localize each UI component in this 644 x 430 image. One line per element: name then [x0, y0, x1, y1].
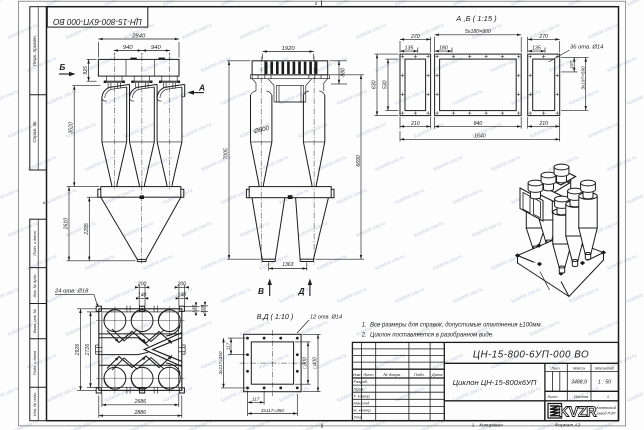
svg-text:№ докум.: № докум. — [383, 372, 401, 377]
svg-text:135: 135 — [405, 45, 414, 51]
svg-text:3x117=350: 3x117=350 — [218, 351, 223, 374]
svg-text:Лист: Лист — [546, 394, 558, 399]
svg-text:Изм: Изм — [353, 372, 361, 377]
svg-text:270: 270 — [538, 34, 548, 40]
svg-text:200: 200 — [177, 282, 187, 288]
svg-text:Циклон ЦН-15-800х6УП: Циклон ЦН-15-800х6УП — [453, 378, 537, 387]
svg-text:ЦН-15-800-6УП-000 ВО: ЦН-15-800-6УП-000 ВО — [473, 350, 589, 361]
svg-text:12 отв. Ø14: 12 отв. Ø14 — [310, 315, 342, 321]
svg-text:117: 117 — [252, 397, 260, 402]
svg-text:2886: 2886 — [134, 410, 147, 416]
svg-text:270: 270 — [410, 34, 420, 40]
svg-text:630: 630 — [372, 80, 378, 89]
svg-text:Пров.: Пров. — [354, 386, 365, 391]
svg-text:В,Д ( 1:10 ): В,Д ( 1:10 ) — [257, 312, 294, 321]
svg-text:5x180=900: 5x180=900 — [465, 29, 491, 35]
svg-text:197: 197 — [569, 60, 574, 68]
svg-text:KVZR: KVZR — [559, 404, 598, 420]
svg-text:□300: □300 — [303, 357, 309, 369]
svg-text:6690: 6690 — [356, 155, 362, 167]
svg-text:210: 210 — [538, 121, 548, 127]
svg-text:Подп.: Подп. — [414, 372, 425, 377]
svg-text:825: 825 — [83, 66, 89, 75]
svg-text:3488,9: 3488,9 — [571, 380, 587, 386]
svg-text:Инв. № дубл.: Инв. № дубл. — [32, 274, 37, 298]
svg-text:2610: 2610 — [64, 218, 70, 231]
svg-text:Листов: Листов — [573, 394, 589, 399]
svg-text:530: 530 — [383, 80, 389, 89]
svg-text:2840: 2840 — [131, 33, 146, 39]
svg-text:1 : 50: 1 : 50 — [598, 380, 611, 386]
svg-text:135: 135 — [532, 45, 541, 51]
svg-text:24 отв. Ø18: 24 отв. Ø18 — [54, 289, 89, 295]
svg-text:1: 1 — [472, 423, 475, 428]
svg-text:Перв. примен.: Перв. примен. — [32, 35, 37, 66]
svg-text:Т. контр.: Т. контр. — [354, 393, 371, 398]
svg-text:Лит.: Лит. — [550, 365, 560, 370]
svg-text:1920: 1920 — [282, 46, 296, 52]
svg-text:А: А — [198, 82, 205, 92]
svg-text:1. Все размеры для справок, д: 1. Все размеры для справок, допустимые о… — [362, 322, 543, 328]
svg-text:36 отв. Ø14: 36 отв. Ø14 — [570, 45, 603, 51]
svg-text:7005: 7005 — [224, 148, 230, 160]
svg-text:Лист: Лист — [362, 372, 374, 377]
svg-text:1640: 1640 — [474, 134, 486, 140]
svg-text:А ,Б ( 1:15 ): А ,Б ( 1:15 ) — [455, 14, 497, 23]
svg-text:140: 140 — [178, 293, 187, 299]
svg-text:Разраб.: Разраб. — [354, 379, 368, 384]
svg-text:Инв. № подл.: Инв. № подл. — [32, 392, 37, 416]
svg-text:2686: 2686 — [134, 399, 147, 405]
svg-text:940: 940 — [151, 45, 162, 51]
svg-text:Н. контр.: Н. контр. — [354, 408, 372, 413]
svg-text:В: В — [258, 286, 264, 296]
svg-text:2726: 2726 — [85, 344, 91, 357]
svg-text:140: 140 — [191, 305, 196, 313]
svg-text:Дата: Дата — [431, 372, 443, 377]
svg-text:Подп. и дата: Подп. и дата — [32, 230, 37, 255]
svg-text:Масса: Масса — [573, 365, 586, 370]
svg-text:2926: 2926 — [75, 344, 81, 357]
svg-text:Взам. инв. №: Взам. инв. № — [32, 308, 37, 333]
svg-text:Подп. и дата: Подп. и дата — [32, 350, 37, 375]
svg-text:Нач.отд: Нач.отд — [354, 401, 371, 406]
svg-text:Копельный: Копельный — [597, 406, 617, 410]
svg-text:Справ. №: Справ. № — [32, 121, 37, 142]
svg-text:3x197=590: 3x197=590 — [580, 66, 585, 90]
svg-text:Масштаб: Масштаб — [595, 365, 614, 370]
svg-text:888: 888 — [341, 68, 347, 77]
svg-text:940: 940 — [123, 45, 134, 51]
svg-text:200: 200 — [137, 282, 147, 288]
svg-text:завод РЭП: завод РЭП — [596, 412, 616, 416]
svg-text:1363: 1363 — [282, 262, 293, 268]
svg-text:3520: 3520 — [69, 122, 75, 134]
svg-text:□400: □400 — [313, 357, 319, 369]
svg-text:180: 180 — [439, 45, 448, 51]
svg-text:140: 140 — [138, 293, 147, 299]
svg-text:2. Циклон поставляется в разо: 2. Циклон поставляется в разобранном вид… — [361, 333, 494, 339]
svg-text:Копировал: Копировал — [479, 423, 503, 428]
svg-text:210: 210 — [410, 121, 420, 127]
svg-text:Формат А3: Формат А3 — [555, 423, 581, 428]
svg-text:1: 1 — [607, 394, 609, 399]
svg-text:Б: Б — [59, 62, 65, 72]
svg-text:ЦН-15-800-6УП-000 ВО: ЦН-15-800-6УП-000 ВО — [52, 17, 141, 26]
svg-text:3x117=350: 3x117=350 — [261, 408, 284, 413]
svg-text:840: 840 — [474, 121, 483, 127]
svg-text:Д: Д — [298, 286, 305, 296]
svg-text:Утв.: Утв. — [354, 415, 363, 420]
svg-text:117: 117 — [226, 342, 231, 350]
svg-text:2205: 2205 — [84, 223, 90, 236]
